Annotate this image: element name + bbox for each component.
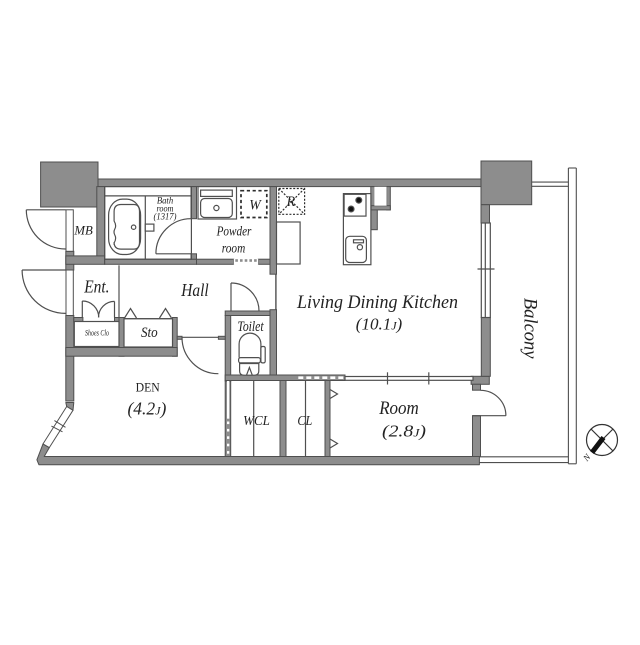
svg-text:Ent.: Ent. <box>83 277 109 297</box>
svg-text:R: R <box>286 194 296 210</box>
svg-text:(4.2J): (4.2J) <box>127 398 166 418</box>
svg-text:(1317): (1317) <box>154 212 177 223</box>
svg-text:Shoes Clo: Shoes Clo <box>85 327 109 337</box>
svg-text:room: room <box>222 242 246 257</box>
svg-text:WCL: WCL <box>243 413 270 428</box>
svg-text:Hall: Hall <box>180 280 208 300</box>
svg-text:CL: CL <box>297 413 312 428</box>
svg-text:Room: Room <box>378 398 418 419</box>
svg-text:MB: MB <box>73 224 93 238</box>
svg-text:Powder: Powder <box>216 224 252 239</box>
svg-text:Toilet: Toilet <box>237 319 264 335</box>
svg-text:Balcony: Balcony <box>520 298 540 359</box>
svg-text:W: W <box>249 198 262 214</box>
svg-text:(2.8J): (2.8J) <box>382 421 426 440</box>
svg-text:DEN: DEN <box>136 380 160 394</box>
svg-text:Living Dining Kitchen: Living Dining Kitchen <box>296 292 458 313</box>
svg-text:Sto: Sto <box>141 325 158 341</box>
